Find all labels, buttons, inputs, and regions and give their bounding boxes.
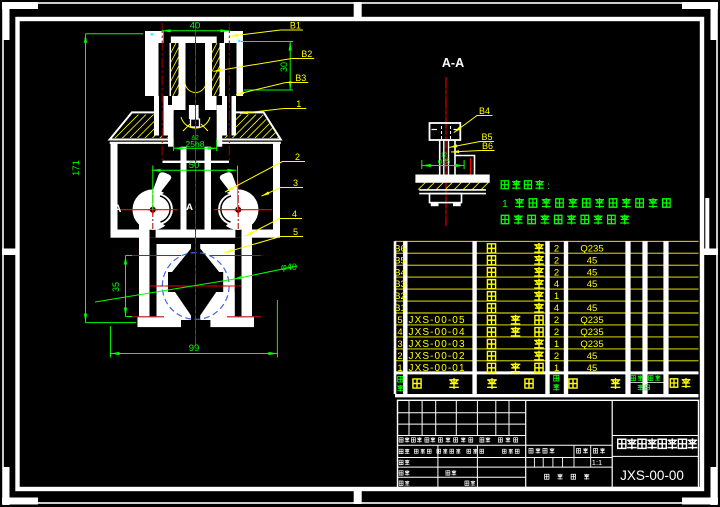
svg-text:Q235: Q235 (580, 243, 603, 254)
svg-text:φ25: φ25 (438, 159, 450, 166)
svg-text:Q235: Q235 (580, 315, 603, 326)
svg-text:12: 12 (441, 153, 447, 159)
svg-text:99: 99 (189, 343, 200, 354)
svg-text:φ40: φ40 (281, 262, 297, 272)
svg-text::: : (547, 181, 550, 192)
svg-text:3: 3 (397, 339, 402, 350)
svg-text:B1: B1 (394, 303, 406, 314)
svg-text:1: 1 (554, 339, 559, 350)
svg-text:JXS-00-00: JXS-00-00 (620, 468, 684, 483)
svg-text:Q235: Q235 (580, 327, 603, 338)
svg-text:30: 30 (279, 62, 289, 72)
svg-text:2: 2 (397, 351, 402, 362)
svg-text:1:1: 1:1 (592, 458, 602, 467)
svg-text:B6: B6 (394, 243, 406, 254)
svg-text:2: 2 (554, 315, 559, 326)
svg-text:2: 2 (554, 351, 559, 362)
svg-text:45: 45 (587, 255, 598, 266)
svg-text:A-A: A-A (442, 56, 464, 70)
svg-text:40: 40 (190, 20, 201, 31)
svg-text:B3: B3 (394, 279, 406, 290)
svg-text:JXS-00-04: JXS-00-04 (409, 327, 465, 338)
svg-text:JXS-00-03: JXS-00-03 (409, 339, 465, 350)
svg-text:JXS-00-02: JXS-00-02 (409, 351, 465, 362)
svg-text:1: 1 (397, 363, 402, 374)
svg-text:Q235: Q235 (580, 339, 603, 350)
svg-text:4: 4 (397, 327, 402, 338)
svg-text:1: 1 (502, 198, 508, 210)
svg-text:B2: B2 (301, 49, 312, 59)
svg-text:B5: B5 (394, 255, 406, 266)
svg-text:B6: B6 (482, 141, 493, 151)
svg-text:1: 1 (554, 291, 559, 302)
svg-text:2: 2 (554, 243, 559, 254)
svg-text:B1: B1 (290, 21, 301, 31)
svg-text:4: 4 (554, 303, 559, 314)
svg-text:A: A (186, 202, 193, 213)
svg-text:B4: B4 (479, 106, 490, 116)
svg-text:45: 45 (587, 267, 598, 278)
svg-text:45: 45 (587, 351, 598, 362)
svg-text:1: 1 (554, 363, 559, 374)
svg-text:5: 5 (397, 315, 402, 326)
svg-text:1: 1 (296, 99, 301, 109)
svg-text:35: 35 (111, 282, 121, 292)
svg-text:50: 50 (189, 160, 200, 171)
svg-text:B2: B2 (394, 291, 406, 302)
svg-text:2: 2 (554, 267, 559, 278)
svg-text:45: 45 (587, 303, 598, 314)
svg-text:JXS-00-01: JXS-00-01 (409, 363, 465, 374)
svg-text:5: 5 (293, 227, 298, 237)
svg-text:2: 2 (554, 255, 559, 266)
svg-text:A: A (114, 203, 122, 215)
svg-text:3: 3 (293, 178, 298, 188)
svg-text:2: 2 (554, 327, 559, 338)
svg-text:4: 4 (292, 209, 297, 219)
svg-text:171: 171 (71, 160, 82, 176)
svg-text:Δ2: Δ2 (191, 136, 199, 142)
svg-text:2: 2 (295, 152, 300, 162)
svg-text:B4: B4 (394, 267, 406, 278)
svg-text:45: 45 (587, 279, 598, 290)
svg-text:45: 45 (587, 363, 598, 374)
svg-text:B3: B3 (295, 73, 306, 83)
svg-text:JXS-00-05: JXS-00-05 (409, 315, 465, 326)
svg-text:4: 4 (554, 279, 559, 290)
